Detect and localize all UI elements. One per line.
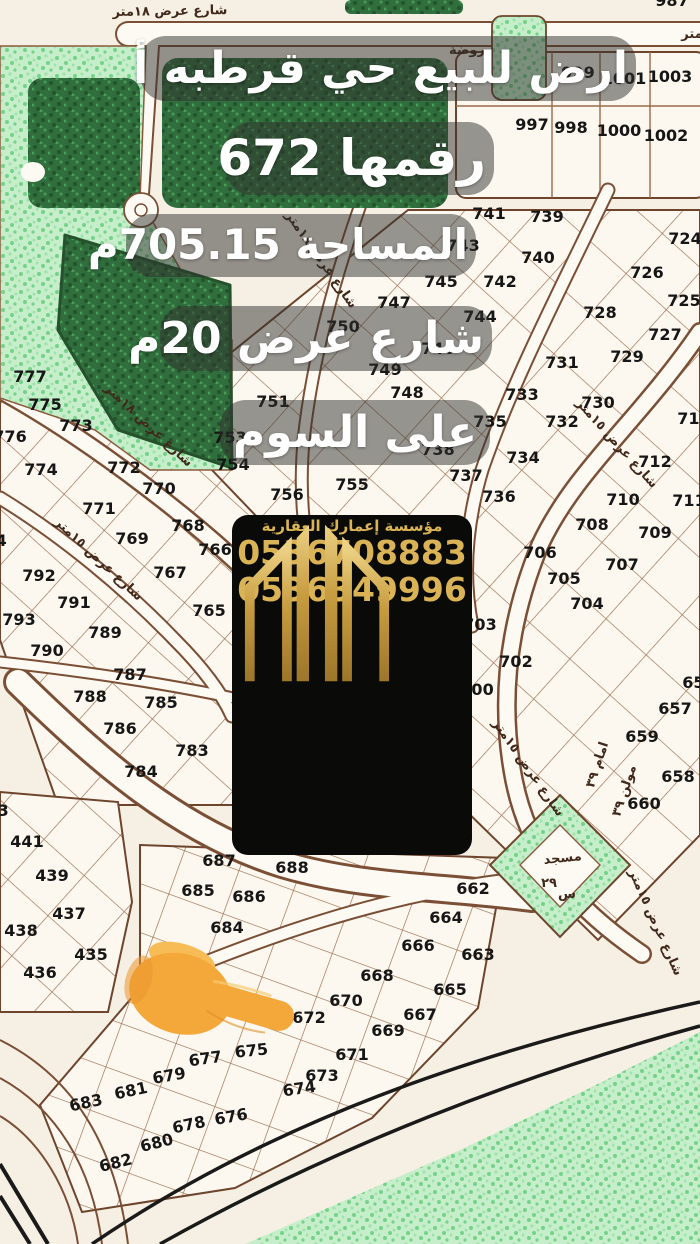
ad-line-price-note: على السوم [220, 400, 490, 465]
plot-number: 792 [22, 566, 55, 585]
ad-line-title: ارض للبيع حي قرطبه أ [140, 36, 636, 101]
plot-number: 666 [401, 936, 434, 955]
plot-number: 737 [449, 466, 482, 485]
plot-number: 1002 [644, 126, 689, 145]
agency-card: مؤسسة إعمارك العقارية 0536708883 0536349… [232, 515, 472, 855]
plot-number: 765 [192, 601, 225, 620]
plot-number: 736 [482, 487, 515, 506]
plot-number: 724 [668, 229, 700, 248]
plot-number: 704 [570, 594, 603, 613]
plot-number: 783 [175, 741, 208, 760]
plot-number: 662 [456, 879, 489, 898]
block-southwest [0, 792, 132, 1012]
plot-number: 1000 [597, 121, 642, 140]
plot-number: 732 [545, 412, 578, 431]
plot-number: 687 [202, 851, 235, 870]
plot-number: 784 [124, 762, 157, 781]
plot-number: 659 [625, 727, 658, 746]
plot-number: 766 [198, 540, 231, 559]
plot-number: 685 [181, 881, 214, 900]
plot-number: 756 [270, 485, 303, 504]
plot-number: 728 [583, 303, 616, 322]
plot-number: 793 [2, 610, 35, 629]
plot-number: 997 [515, 115, 548, 134]
plot-number: 439 [35, 866, 68, 885]
plot-number: 656 [682, 673, 700, 692]
plot-number: 664 [429, 908, 462, 927]
plot-number: 794 [0, 531, 7, 550]
plot-number: 671 [335, 1045, 368, 1064]
plot-number: 708 [575, 515, 608, 534]
plot-number: 686 [232, 887, 265, 906]
plot-number: 705 [547, 569, 580, 588]
plot-number: 657 [658, 699, 691, 718]
plot-number: 774 [24, 460, 57, 479]
plot-number: 773 [59, 416, 92, 435]
plot-number: 435 [74, 945, 107, 964]
plot-number: 658 [661, 767, 694, 786]
plot-number: 730 [581, 393, 614, 412]
plot-number: 437 [52, 904, 85, 923]
plot-number: 706 [523, 543, 556, 562]
park-clearing [21, 162, 45, 182]
plot-number: 786 [103, 719, 136, 738]
plot-number: 711 [672, 491, 700, 510]
street-label: متر [680, 27, 700, 42]
plot-number: 788 [73, 687, 106, 706]
plot-number: 672 [292, 1008, 325, 1027]
ad-line-area: المساحة 705.15م [126, 214, 476, 277]
plot-number: 772 [107, 458, 140, 477]
plot-number: 740 [521, 248, 554, 267]
plot-number: 710 [606, 490, 639, 509]
plot-number: 998 [554, 118, 587, 137]
plot-number: 777 [13, 367, 46, 386]
plot-number: 668 [360, 966, 393, 985]
plot-number: 769 [115, 529, 148, 548]
plot-number: 669 [371, 1021, 404, 1040]
plot-number: 702 [499, 652, 532, 671]
plot-number: 734 [506, 448, 539, 467]
plot-number: 709 [638, 523, 671, 542]
plot-number: 663 [461, 945, 494, 964]
plot-number: 787 [113, 665, 146, 684]
plot-number: 665 [433, 980, 466, 999]
green-strip [345, 0, 463, 14]
gold-towers-building-logo [232, 515, 402, 683]
plot-number: 770 [142, 479, 175, 498]
plot-number: 443 [0, 801, 9, 820]
street-label: س [558, 887, 576, 902]
plot-number: 791 [57, 593, 90, 612]
land-sale-ad-image: شارع عرض ١٨مترمترروضةشارع عرض ١٨مترشارع … [0, 0, 700, 1244]
plot-number: 441 [10, 832, 43, 851]
plot-number: 670 [329, 991, 362, 1010]
plot-number: 739 [530, 207, 563, 226]
plot-number: 768 [171, 516, 204, 535]
plot-number: 729 [610, 347, 643, 366]
ad-line-plot-number: رقمها 672 [226, 122, 494, 195]
plot-number: 1003 [648, 67, 693, 86]
plot-number: 684 [210, 918, 243, 937]
plot-number: 688 [275, 858, 308, 877]
street-label: شارع عرض ١٨متر [111, 3, 227, 20]
plot-number: 727 [648, 325, 681, 344]
plot-number: 790 [30, 641, 63, 660]
plot-number: 660 [627, 794, 660, 813]
plot-number: 438 [4, 921, 37, 940]
plot-number: 731 [545, 353, 578, 372]
plot-number: 987 [655, 0, 688, 10]
ad-line-street-width: شارع عرض 20م [160, 306, 492, 371]
plot-number: 742 [483, 272, 516, 291]
plot-number: 712 [638, 452, 671, 471]
plot-number: 436 [23, 963, 56, 982]
street-label: ٢٩ [541, 876, 557, 891]
plot-number: 767 [153, 563, 186, 582]
park-trees [28, 78, 140, 208]
plot-number: 776 [0, 427, 27, 446]
plot-number: 726 [630, 263, 663, 282]
plot-number: 733 [505, 385, 538, 404]
plot-number: 714 [677, 409, 700, 428]
plot-number: 741 [472, 204, 505, 223]
plot-number: 771 [82, 499, 115, 518]
plot-number: 775 [28, 395, 61, 414]
plot-number: 755 [335, 475, 368, 494]
plot-number: 785 [144, 693, 177, 712]
plot-number: 789 [88, 623, 121, 642]
plot-number: 725 [667, 291, 700, 310]
plot-number: 667 [403, 1005, 436, 1024]
plot-number: 707 [605, 555, 638, 574]
plot-number: 675 [234, 1039, 269, 1061]
